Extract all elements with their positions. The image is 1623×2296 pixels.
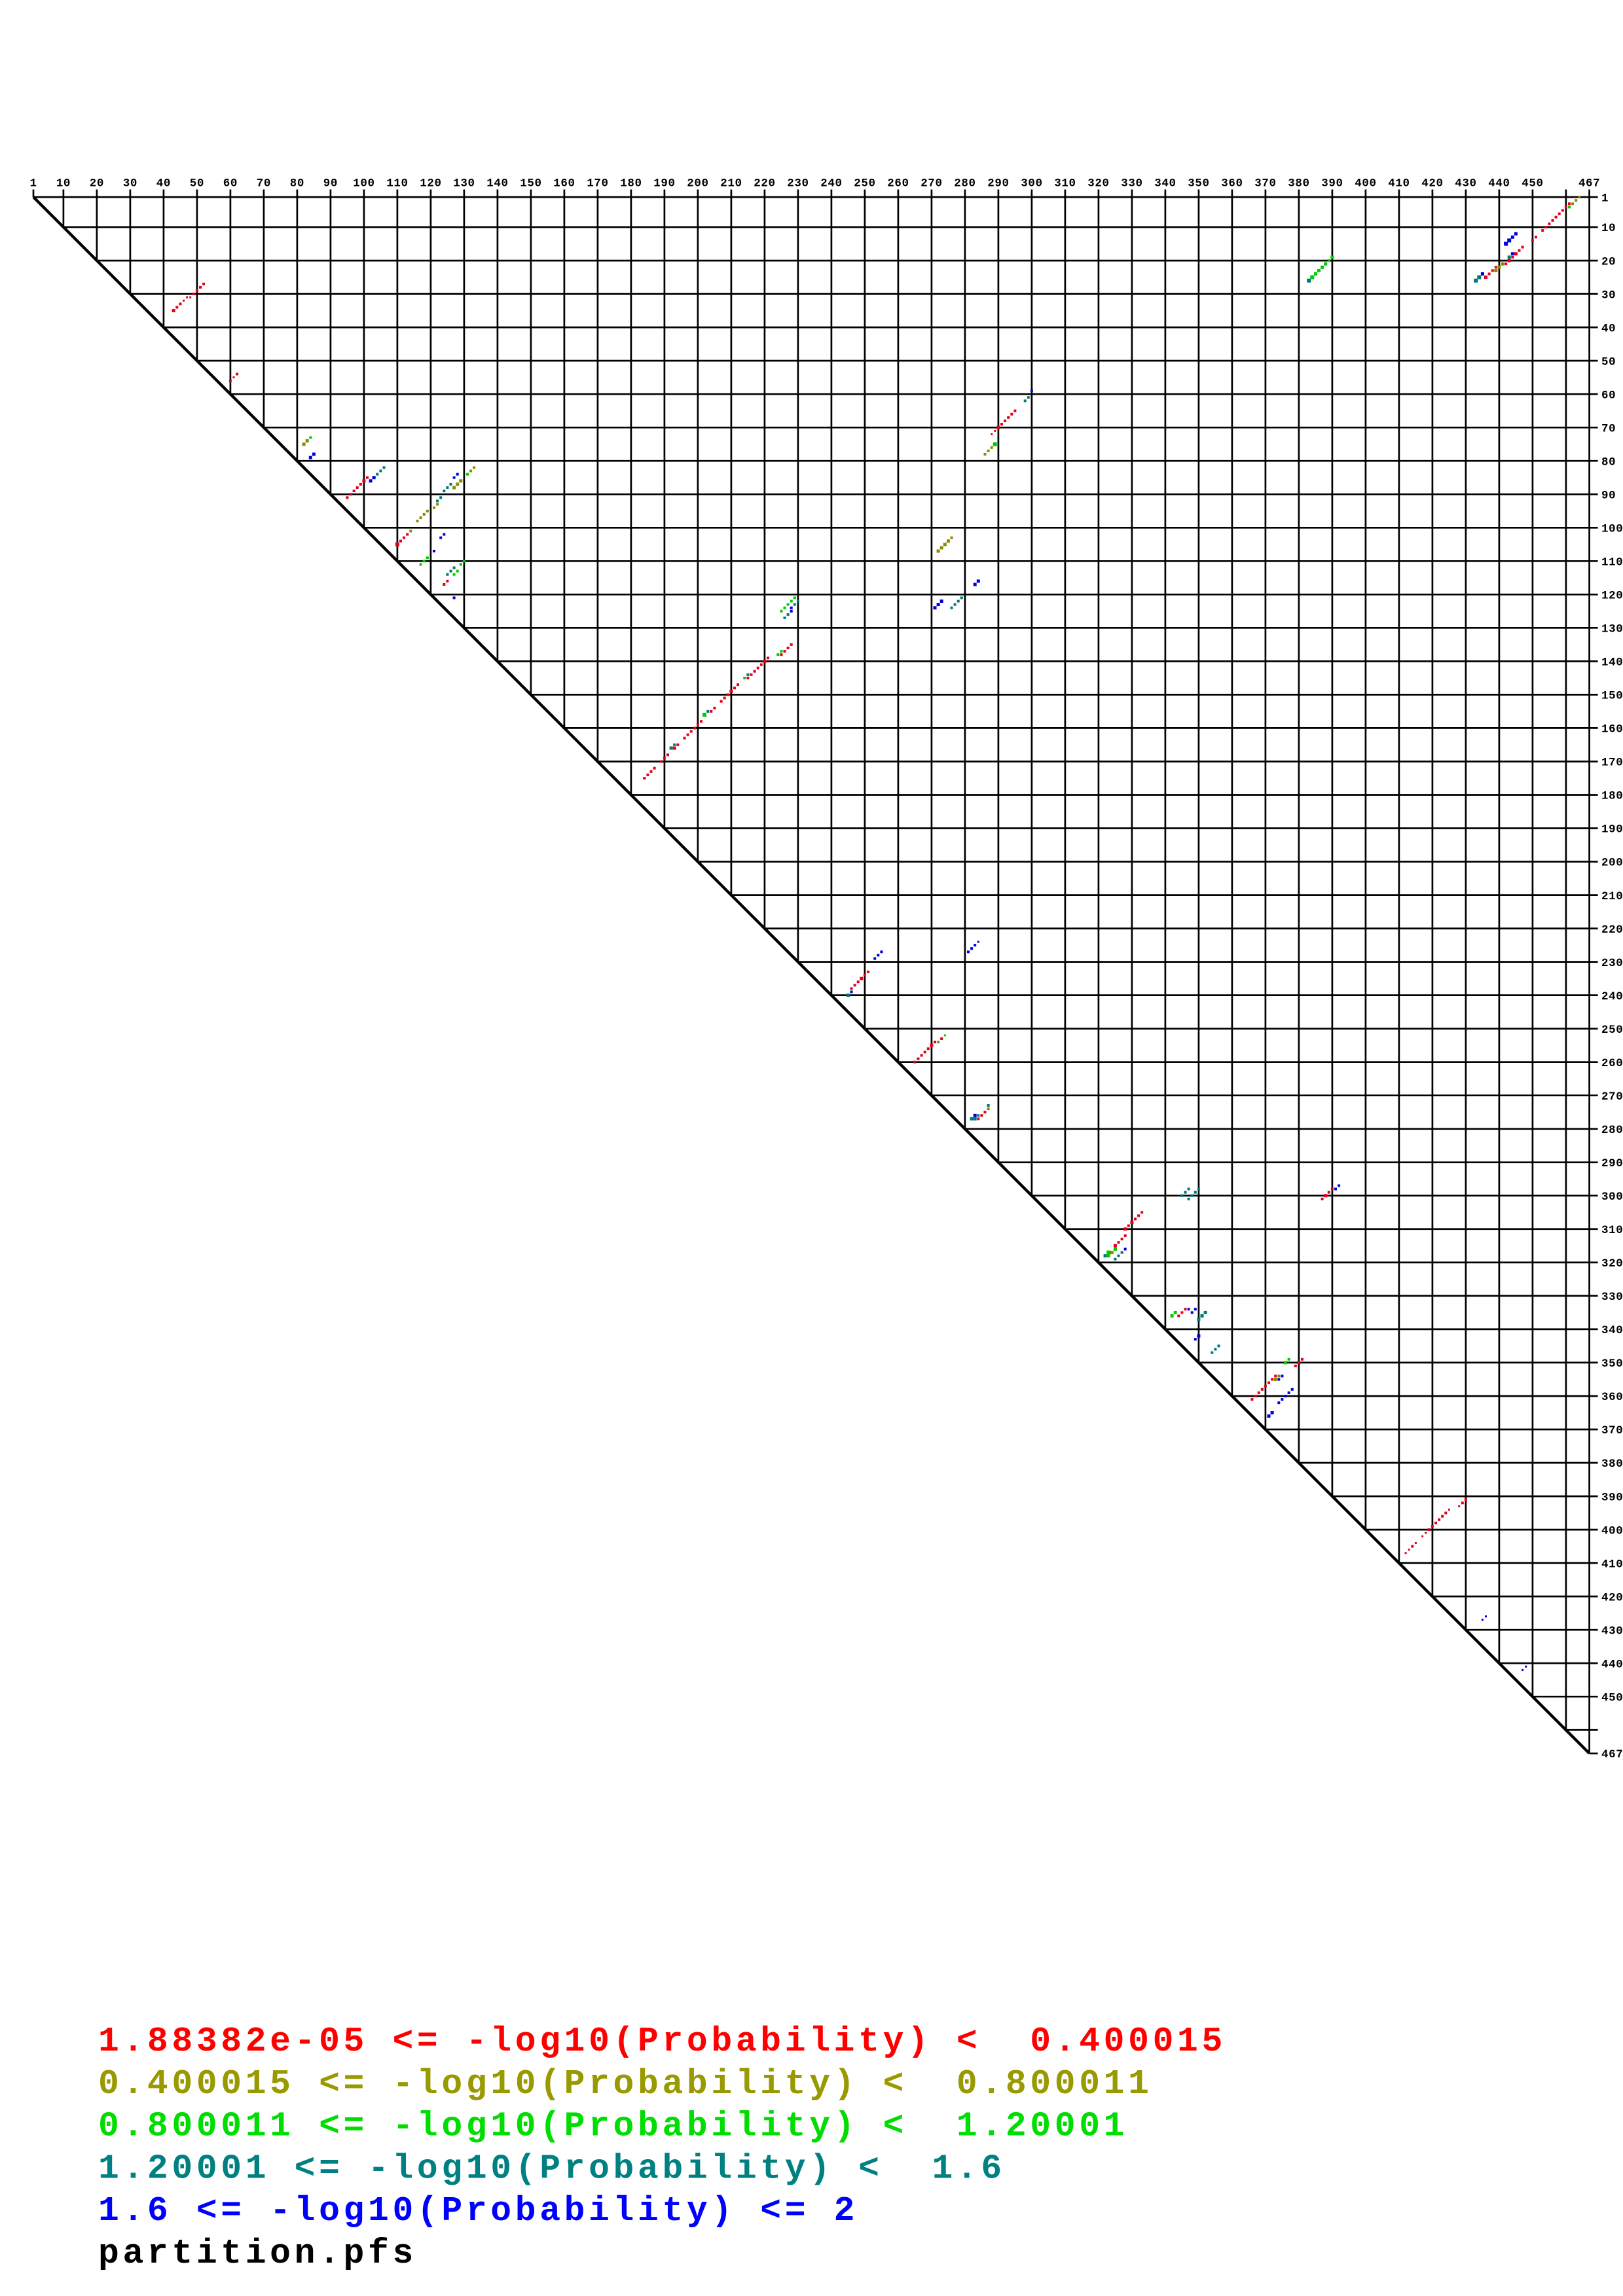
- svg-text:90: 90: [323, 177, 338, 190]
- svg-text:190: 190: [653, 177, 675, 190]
- svg-text:420: 420: [1601, 1591, 1623, 1604]
- svg-text:370: 370: [1254, 177, 1276, 190]
- svg-text:40: 40: [156, 177, 171, 190]
- svg-text:20: 20: [90, 177, 104, 190]
- svg-text:400: 400: [1601, 1524, 1623, 1537]
- svg-text:220: 220: [754, 177, 775, 190]
- svg-text:420: 420: [1421, 177, 1443, 190]
- svg-text:170: 170: [1601, 757, 1623, 770]
- svg-text:410: 410: [1388, 177, 1410, 190]
- svg-text:130: 130: [453, 177, 475, 190]
- svg-text:70: 70: [1601, 422, 1616, 435]
- svg-text:30: 30: [1601, 289, 1616, 302]
- svg-text:450: 450: [1522, 177, 1543, 190]
- svg-text:140: 140: [1601, 656, 1623, 670]
- svg-text:290: 290: [1601, 1157, 1623, 1170]
- svg-text:240: 240: [820, 177, 842, 190]
- svg-text:80: 80: [1601, 456, 1616, 469]
- svg-text:310: 310: [1601, 1224, 1623, 1237]
- svg-text:10: 10: [1601, 222, 1616, 235]
- svg-text:340: 340: [1601, 1324, 1623, 1337]
- svg-text:100: 100: [1601, 523, 1623, 536]
- svg-text:50: 50: [1601, 355, 1616, 368]
- svg-text:390: 390: [1321, 177, 1343, 190]
- svg-text:210: 210: [1601, 890, 1623, 903]
- svg-text:260: 260: [887, 177, 909, 190]
- svg-text:310: 310: [1054, 177, 1076, 190]
- svg-text:1.6 <= -log10(Probability) <=: 1.6 <= -log10(Probability) <= 2: [98, 2191, 858, 2231]
- svg-text:10: 10: [56, 177, 71, 190]
- svg-text:210: 210: [720, 177, 742, 190]
- svg-text:160: 160: [1601, 723, 1623, 736]
- svg-text:467: 467: [1601, 1748, 1623, 1761]
- svg-text:467: 467: [1578, 177, 1600, 190]
- svg-text:280: 280: [1601, 1124, 1623, 1137]
- svg-text:330: 330: [1601, 1291, 1623, 1304]
- svg-text:220: 220: [1601, 924, 1623, 937]
- svg-text:400: 400: [1355, 177, 1376, 190]
- svg-text:370: 370: [1601, 1424, 1623, 1437]
- svg-text:70: 70: [257, 177, 271, 190]
- svg-text:330: 330: [1121, 177, 1142, 190]
- svg-text:180: 180: [1601, 790, 1623, 803]
- svg-text:430: 430: [1601, 1624, 1623, 1638]
- svg-text:0.400015 <= -log10(Probability: 0.400015 <= -log10(Probability) < 0.8000…: [98, 2064, 1153, 2104]
- svg-text:30: 30: [123, 177, 137, 190]
- svg-text:250: 250: [1601, 1024, 1623, 1037]
- svg-text:190: 190: [1601, 823, 1623, 836]
- svg-text:450: 450: [1601, 1691, 1623, 1704]
- svg-text:40: 40: [1601, 322, 1616, 335]
- svg-text:290: 290: [987, 177, 1009, 190]
- svg-text:270: 270: [921, 177, 942, 190]
- svg-text:1: 1: [29, 177, 37, 190]
- svg-text:100: 100: [353, 177, 374, 190]
- svg-text:350: 350: [1601, 1357, 1623, 1371]
- svg-text:0.800011 <= -log10(Probability: 0.800011 <= -log10(Probability) < 1.2000…: [98, 2107, 1128, 2146]
- svg-text:320: 320: [1087, 177, 1109, 190]
- svg-text:260: 260: [1601, 1057, 1623, 1070]
- svg-text:320: 320: [1601, 1257, 1623, 1270]
- svg-text:1: 1: [1601, 192, 1609, 205]
- svg-text:160: 160: [553, 177, 575, 190]
- svg-text:110: 110: [386, 177, 408, 190]
- svg-text:60: 60: [223, 177, 238, 190]
- svg-text:50: 50: [190, 177, 204, 190]
- svg-text:380: 380: [1601, 1458, 1623, 1471]
- svg-text:430: 430: [1455, 177, 1476, 190]
- svg-text:150: 150: [520, 177, 541, 190]
- svg-text:1.20001 <= -log10(Probability): 1.20001 <= -log10(Probability) < 1.6: [98, 2149, 1006, 2188]
- svg-text:20: 20: [1601, 255, 1616, 268]
- svg-text:200: 200: [1601, 857, 1623, 870]
- svg-text:380: 380: [1288, 177, 1309, 190]
- svg-text:300: 300: [1601, 1191, 1623, 1204]
- svg-text:300: 300: [1021, 177, 1042, 190]
- svg-text:110: 110: [1601, 556, 1623, 569]
- svg-text:120: 120: [1601, 590, 1623, 603]
- svg-text:440: 440: [1601, 1658, 1623, 1671]
- svg-text:80: 80: [290, 177, 304, 190]
- svg-text:280: 280: [954, 177, 976, 190]
- svg-text:170: 170: [587, 177, 608, 190]
- svg-text:120: 120: [420, 177, 441, 190]
- svg-text:410: 410: [1601, 1558, 1623, 1571]
- svg-text:200: 200: [687, 177, 708, 190]
- svg-text:230: 230: [787, 177, 809, 190]
- svg-text:150: 150: [1601, 690, 1623, 703]
- svg-text:360: 360: [1221, 177, 1243, 190]
- svg-text:250: 250: [854, 177, 875, 190]
- svg-text:140: 140: [486, 177, 508, 190]
- svg-text:partition.pfs: partition.pfs: [98, 2234, 417, 2273]
- svg-text:230: 230: [1601, 957, 1623, 970]
- svg-text:440: 440: [1488, 177, 1510, 190]
- svg-text:240: 240: [1601, 990, 1623, 1003]
- svg-text:350: 350: [1188, 177, 1209, 190]
- svg-text:130: 130: [1601, 623, 1623, 636]
- svg-text:340: 340: [1154, 177, 1176, 190]
- svg-text:1.88382e-05 <= -log10(Probabil: 1.88382e-05 <= -log10(Probability) < 0.4…: [98, 2022, 1226, 2061]
- svg-text:270: 270: [1601, 1090, 1623, 1103]
- svg-text:390: 390: [1601, 1491, 1623, 1504]
- svg-text:90: 90: [1601, 489, 1616, 502]
- svg-text:180: 180: [620, 177, 642, 190]
- svg-text:60: 60: [1601, 389, 1616, 402]
- svg-text:360: 360: [1601, 1391, 1623, 1404]
